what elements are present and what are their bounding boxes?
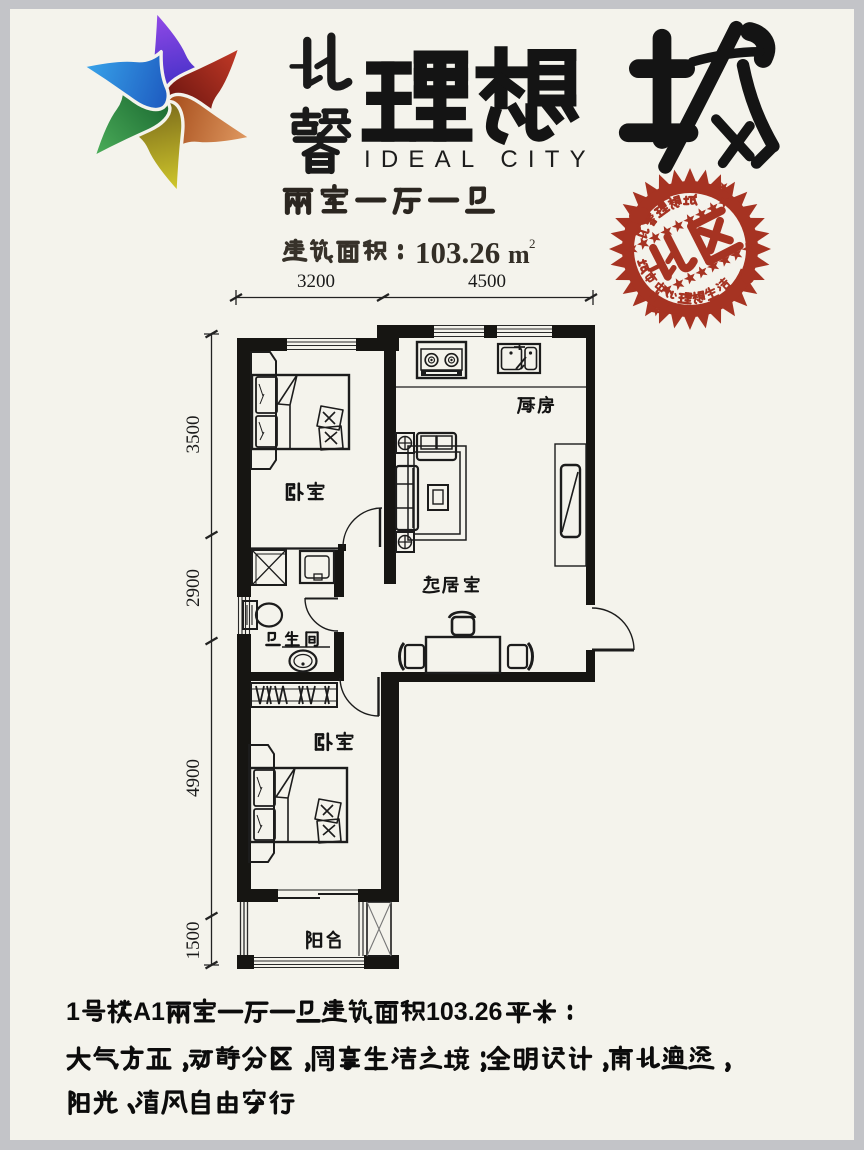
svg-text:m: m — [508, 240, 530, 269]
svg-text:103.26: 103.26 — [426, 998, 502, 1026]
svg-text:3500: 3500 — [183, 416, 204, 454]
svg-text:A1: A1 — [133, 998, 165, 1026]
svg-text:2900: 2900 — [183, 569, 204, 607]
svg-text:1: 1 — [66, 998, 80, 1026]
svg-text:4900: 4900 — [183, 759, 204, 797]
svg-text:2: 2 — [529, 236, 536, 251]
svg-text:IDEAL CITY: IDEAL CITY — [364, 146, 596, 173]
svg-text:103.26: 103.26 — [415, 235, 500, 270]
svg-text:4500: 4500 — [468, 271, 506, 292]
svg-text:1500: 1500 — [183, 922, 204, 960]
svg-text:3200: 3200 — [297, 271, 335, 292]
